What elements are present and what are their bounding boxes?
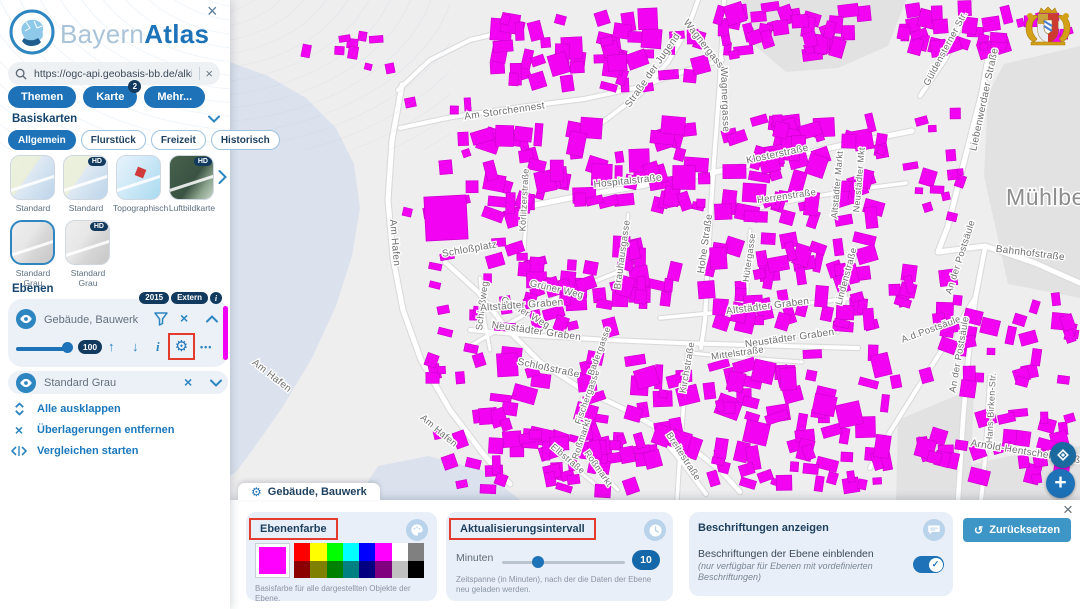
chip-freizeit[interactable]: Freizeit xyxy=(151,130,206,150)
current-color-swatch-fill xyxy=(259,547,286,574)
layer-card-standard-grau: Standard Grau × xyxy=(8,371,228,394)
palette-swatch[interactable] xyxy=(392,561,408,579)
svg-text:Wagnergasse: Wagnergasse xyxy=(718,67,731,132)
expand-all-action[interactable]: Alle ausklappen xyxy=(10,402,175,416)
filter-icon[interactable] xyxy=(154,312,168,326)
basemap-thumb-standard[interactable] xyxy=(10,155,55,200)
palette-swatch[interactable] xyxy=(408,543,424,561)
main-nav: Themen Karte 2 Mehr... xyxy=(8,86,205,108)
layer-name: Standard Grau xyxy=(44,377,116,389)
remove-icon: × xyxy=(10,422,28,438)
basemap-thumb-luftbildkarte[interactable]: HD xyxy=(169,155,214,200)
palette-swatch[interactable] xyxy=(294,561,310,579)
layer-card-gebaeude-bauwerk: 2015 Extern i Gebäude, Bauwerk × 100 ↑ ↓… xyxy=(8,299,228,367)
layer-remove-icon[interactable]: × xyxy=(180,310,188,326)
target-diamond-icon xyxy=(1055,447,1071,463)
search-icon xyxy=(15,68,27,80)
opacity-value-badge: 100 xyxy=(78,340,102,354)
plus-icon: + xyxy=(1054,472,1066,493)
clock-icon xyxy=(644,519,666,541)
move-layer-up-icon[interactable]: ↑ xyxy=(108,339,115,354)
layer-actions: Alle ausklappen × Überlagerungen entfern… xyxy=(10,402,175,458)
ebenen-header: Ebenen xyxy=(12,283,54,295)
layer-settings-gear-icon[interactable]: ⚙ xyxy=(175,339,188,354)
thumb-label: Luftbildkarte xyxy=(166,203,218,213)
palette-swatch[interactable] xyxy=(392,543,408,561)
info-badge-icon[interactable]: i xyxy=(210,292,222,304)
thumb-label: Topographisch xyxy=(113,203,165,213)
palette-icon xyxy=(406,519,428,541)
opacity-slider-track[interactable] xyxy=(16,347,68,351)
basiskarten-collapse-icon[interactable] xyxy=(208,115,220,123)
opacity-slider-thumb[interactable] xyxy=(62,342,73,353)
palette-swatch[interactable] xyxy=(375,561,391,579)
labels-card: Beschriftungen anzeigen Beschriftungen d… xyxy=(689,512,953,596)
layer-collapse-icon[interactable] xyxy=(206,315,218,323)
palette-swatch[interactable] xyxy=(327,543,343,561)
gear-icon: ⚙ xyxy=(251,486,262,498)
interval-slider-thumb[interactable] xyxy=(532,556,544,568)
bayernatlas-logo xyxy=(8,8,56,56)
hd-badge: HD xyxy=(90,222,108,231)
thumb-label: Standard Grau xyxy=(62,268,114,288)
zoom-in-button[interactable]: + xyxy=(1046,469,1075,498)
sidebar: × BayernAtlas × Themen Karte 2 Mehr... B… xyxy=(0,0,230,609)
geolocate-button[interactable] xyxy=(1050,442,1076,468)
extern-badge: Extern xyxy=(171,292,208,304)
basiskarten-header: Basiskarten xyxy=(12,113,77,125)
interval-card-caption: Zeitspanne (in Minuten), nach der die Da… xyxy=(456,575,656,596)
compare-icon xyxy=(11,446,27,456)
panel-tab-title: Gebäude, Bauwerk xyxy=(268,486,367,498)
interval-unit-label: Minuten xyxy=(456,552,493,564)
reset-button[interactable]: ↺ Zurücksetzen xyxy=(963,518,1071,542)
remove-overlays-action[interactable]: × Überlagerungen entfernen xyxy=(10,423,175,437)
search-clear-icon[interactable]: × xyxy=(205,67,213,80)
brand-light: Bayern xyxy=(60,19,144,49)
palette-swatch[interactable] xyxy=(359,543,375,561)
palette-swatch[interactable] xyxy=(310,561,326,579)
eye-icon xyxy=(19,312,33,326)
reset-icon: ↺ xyxy=(974,524,983,537)
hd-badge: HD xyxy=(88,157,106,166)
basemap-category-chips: Allgemein Flurstück Freizeit Historisch xyxy=(8,130,280,150)
expand-collapse-icon xyxy=(14,402,25,416)
layer-settings-panel: ⚙ Gebäude, Bauwerk Ebenenfarbe Basisfarb… xyxy=(230,500,1080,609)
palette-swatch[interactable] xyxy=(310,543,326,561)
thumbnails-next-button[interactable] xyxy=(218,170,227,184)
current-color-swatch[interactable] xyxy=(255,543,290,578)
svg-text:Mühlberg: Mühlberg xyxy=(1006,184,1080,210)
layer-more-icon[interactable]: ••• xyxy=(200,342,212,352)
mehr-button[interactable]: Mehr... xyxy=(144,86,205,108)
palette-swatch[interactable] xyxy=(343,543,359,561)
layer-visibility-toggle[interactable] xyxy=(16,309,36,329)
palette-swatch[interactable] xyxy=(359,561,375,579)
themen-button[interactable]: Themen xyxy=(8,86,76,108)
thumb-label: Standard xyxy=(7,203,59,213)
interval-slider-track[interactable] xyxy=(502,561,625,564)
layer-info-icon[interactable]: i xyxy=(156,339,160,355)
basemap-thumb-standard-grau-selected[interactable] xyxy=(10,220,55,265)
karte-button[interactable]: Karte 2 xyxy=(83,86,137,108)
basemap-thumb-standard-hd[interactable]: HD xyxy=(63,155,108,200)
chip-allgemein[interactable]: Allgemein xyxy=(8,130,76,150)
layer-expand-icon[interactable] xyxy=(210,379,222,387)
brand-bold: Atlas xyxy=(144,19,209,49)
labels-toggle-text: Beschriftungen der Ebene einblenden xyxy=(698,548,874,560)
color-card-title: Ebenenfarbe xyxy=(260,523,327,535)
search-input[interactable] xyxy=(32,67,194,81)
labels-toggle-note: (nur verfügbar für Ebenen mit vordefinie… xyxy=(698,561,898,584)
move-layer-down-icon[interactable]: ↓ xyxy=(132,339,139,354)
refresh-interval-card: Aktualisierungsintervall Minuten 10 Zeit… xyxy=(446,512,673,601)
panel-tab[interactable]: ⚙ Gebäude, Bauwerk xyxy=(238,483,380,500)
ebenenfarbe-highlight-box: Ebenenfarbe xyxy=(249,518,338,540)
palette-swatch[interactable] xyxy=(343,561,359,579)
layer-color-card: Ebenenfarbe Basisfarbe für alle dargeste… xyxy=(246,512,437,601)
app-title: BayernAtlas xyxy=(60,19,209,50)
sidebar-close-button[interactable]: × xyxy=(207,2,218,20)
interval-card-title: Aktualisierungsintervall xyxy=(460,523,585,535)
color-card-caption: Basisfarbe für alle dargestellten Objekt… xyxy=(255,584,430,605)
layer-badges: 2015 Extern i xyxy=(139,292,222,304)
search-divider xyxy=(199,67,200,80)
chip-flurstueck[interactable]: Flurstück xyxy=(81,130,146,150)
eye-icon xyxy=(19,376,33,390)
start-compare-action[interactable]: Vergleichen starten xyxy=(10,444,175,458)
labels-toggle[interactable]: ✓ xyxy=(913,556,944,573)
basemap-thumb-standard-grau-hd[interactable]: HD xyxy=(65,220,110,265)
search-bar[interactable]: × xyxy=(8,62,220,85)
karte-count-badge: 2 xyxy=(128,80,141,93)
intervall-highlight-box: Aktualisierungsintervall xyxy=(449,518,596,540)
year-badge: 2015 xyxy=(139,292,169,304)
speech-bubble-icon xyxy=(923,519,945,541)
bavaria-coat-of-arms xyxy=(1018,6,1078,48)
layer-color-strip xyxy=(223,306,228,360)
layer-visibility-toggle[interactable] xyxy=(16,373,36,393)
palette-swatch[interactable] xyxy=(294,543,310,561)
chip-historisch[interactable]: Historisch xyxy=(211,130,280,150)
panel-close-button[interactable]: × xyxy=(1063,500,1073,520)
check-icon: ✓ xyxy=(929,558,943,572)
layer-remove-icon[interactable]: × xyxy=(184,374,192,390)
interval-value-badge: 10 xyxy=(632,550,660,570)
palette-swatch[interactable] xyxy=(375,543,391,561)
hd-badge: HD xyxy=(194,157,212,166)
color-palette xyxy=(294,543,424,578)
basemap-thumb-topographisch[interactable] xyxy=(116,155,161,200)
labels-card-title: Beschriftungen anzeigen xyxy=(698,522,829,534)
palette-swatch[interactable] xyxy=(327,561,343,579)
palette-swatch[interactable] xyxy=(408,561,424,579)
layer-name: Gebäude, Bauwerk xyxy=(44,314,138,326)
thumb-label: Standard xyxy=(60,203,112,213)
settings-highlight-box: ⚙ xyxy=(168,333,195,360)
